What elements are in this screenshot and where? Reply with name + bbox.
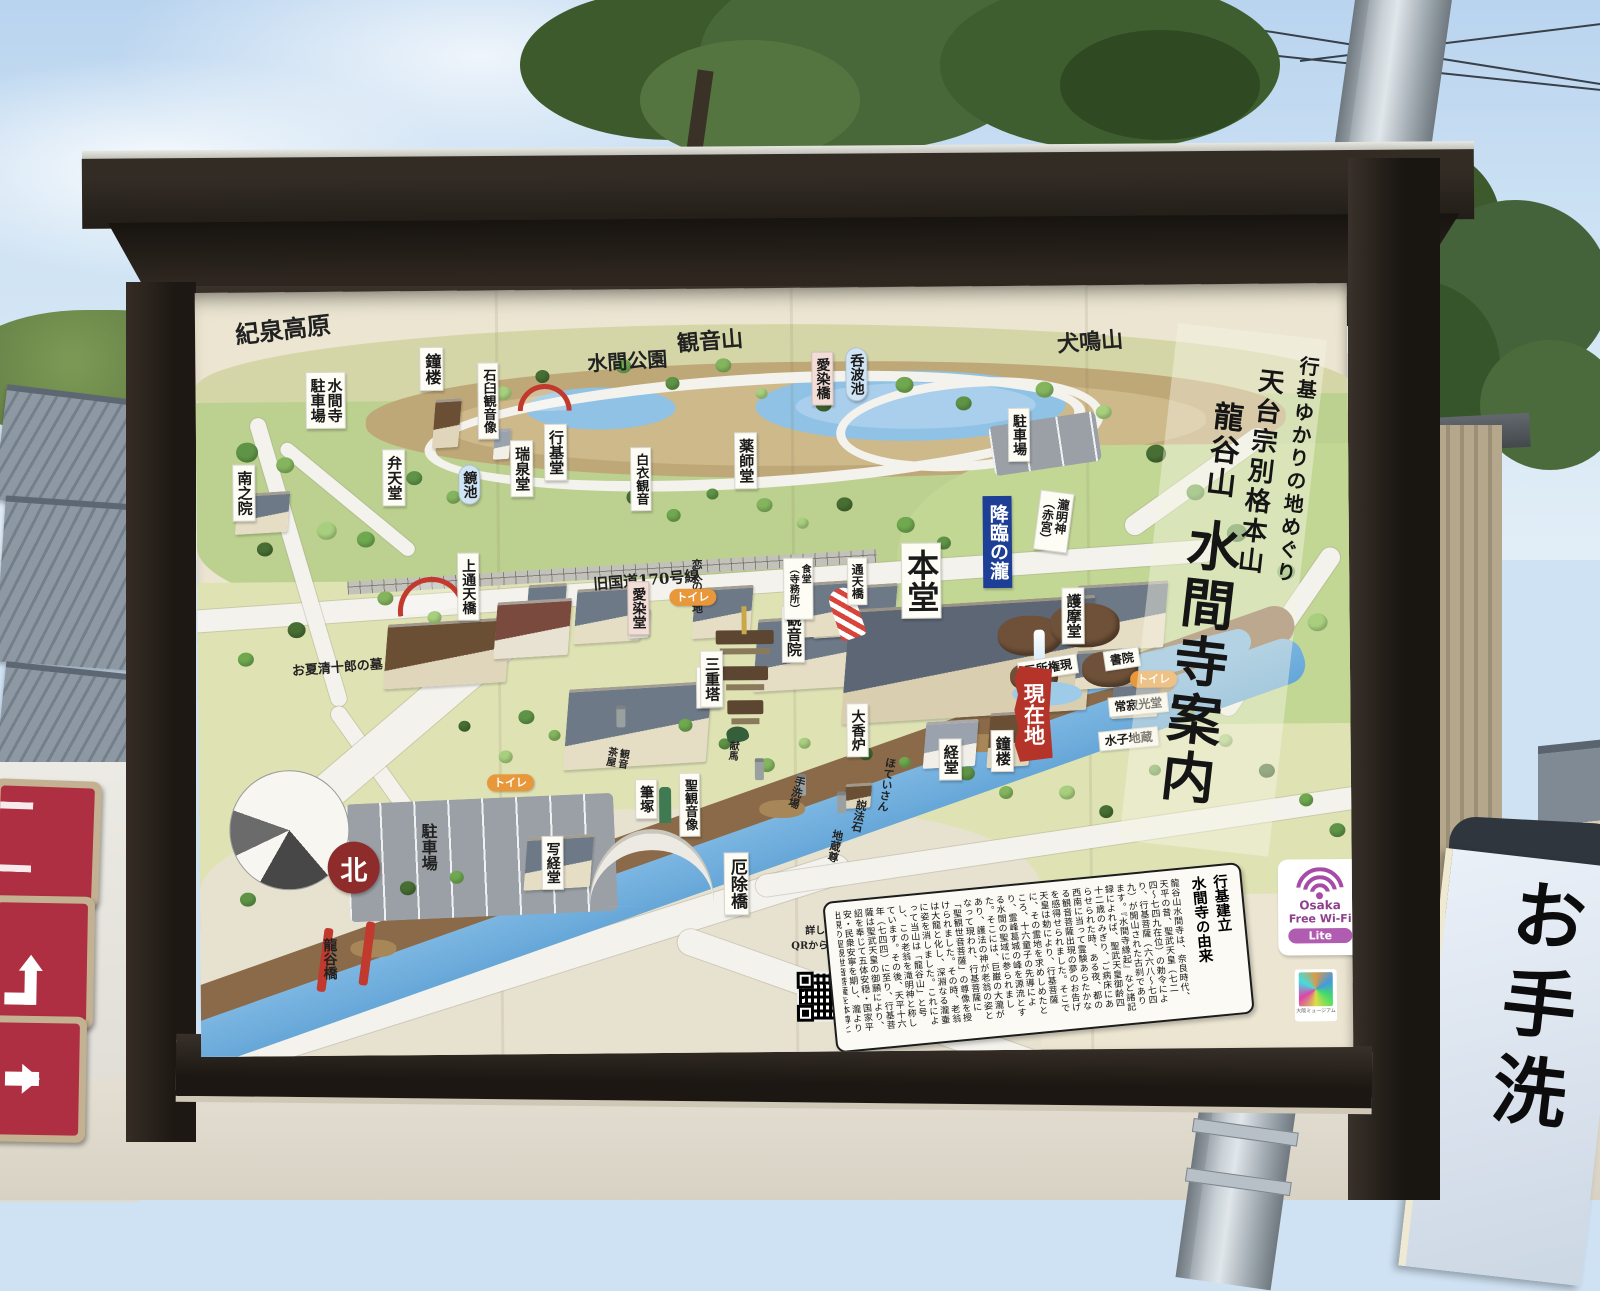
map-label: 水間寺駐車場 bbox=[305, 372, 345, 429]
map-label: 龍谷橋 bbox=[322, 938, 336, 980]
direction-sign-turn bbox=[0, 895, 95, 1029]
map-label: 大香炉 bbox=[846, 703, 868, 757]
map-label: 上通天橋 bbox=[457, 553, 480, 621]
right-arrow-icon bbox=[5, 1071, 39, 1086]
map-label: 紀泉高原 bbox=[234, 313, 332, 348]
map-label: 鏡池 bbox=[458, 465, 480, 505]
map-label: 三重塔 bbox=[700, 650, 723, 707]
museum-mosaic-icon bbox=[1299, 972, 1333, 1006]
osaka-free-wifi-logo: Osaka Free Wi-Fi Lite bbox=[1278, 859, 1354, 956]
map-label: 駐車場 bbox=[419, 823, 435, 871]
map-label: 駐車場 bbox=[1008, 408, 1030, 462]
map-label: 説法石 bbox=[850, 799, 867, 834]
map-label: 行基堂 bbox=[544, 424, 567, 481]
direction-sign-right bbox=[0, 1015, 87, 1143]
map-label: 水間公園 bbox=[587, 349, 668, 374]
signboard-right-frame bbox=[1348, 158, 1440, 1200]
tiled-roof bbox=[0, 495, 141, 670]
history-body-text: 龍谷山水間寺は、奈良時代、天平の昔、聖武天皇（七二四〜七四九在位）の勅令により、… bbox=[835, 878, 1191, 1042]
map-label: 観音茶屋 bbox=[603, 746, 628, 769]
map-label: 食堂（寺務所） bbox=[783, 558, 814, 620]
history-title: 行基建立水間寺の由来 bbox=[1186, 873, 1242, 1009]
map-label: 聖観音像 bbox=[679, 773, 701, 837]
map-label: トイレ bbox=[669, 589, 716, 606]
wifi-lite-badge: Lite bbox=[1288, 928, 1352, 944]
temple-map-panel: 紀泉高原観音山犬鳴山水間公園鐘楼石臼観音像水間寺駐車場南之院弁天堂鏡池瑞泉堂行基… bbox=[195, 283, 1354, 1057]
map-label: 愛染橋 bbox=[811, 351, 833, 405]
map-label: 愛染堂 bbox=[627, 581, 649, 635]
signboard-left-post bbox=[126, 282, 196, 1142]
map-label: 献馬 bbox=[726, 740, 738, 761]
partial-character bbox=[0, 801, 33, 873]
map-label: 厄除橋 bbox=[724, 852, 750, 915]
map-label: 瀧明神（赤宮） bbox=[1033, 490, 1075, 554]
map-label: 本堂 bbox=[901, 543, 942, 619]
compass-north-badge: 北 bbox=[327, 841, 379, 893]
osaka-museum-logo: 大阪ミュージアム bbox=[1295, 969, 1337, 1021]
map-label: 白衣観音 bbox=[630, 447, 652, 511]
map-label: 経堂 bbox=[939, 738, 962, 780]
map-label: 弁天堂 bbox=[382, 449, 405, 506]
map-label: 呑波池 bbox=[845, 347, 867, 401]
current-location-seal: 現在地 bbox=[1014, 666, 1053, 762]
map-label: 南之院 bbox=[232, 465, 255, 522]
map-label: 瑞泉堂 bbox=[510, 440, 533, 497]
map-label: 石臼観音像 bbox=[477, 362, 499, 439]
map-label: 降臨の瀧 bbox=[982, 496, 1012, 588]
restroom-sign-text: お手洗 bbox=[1465, 872, 1600, 1146]
map-label: 薬師堂 bbox=[734, 432, 757, 489]
map-label: 写経堂 bbox=[541, 836, 563, 890]
map-label: ほていさん bbox=[877, 756, 897, 812]
map-label: 地蔵尊 bbox=[826, 829, 843, 864]
map-label: 鐘楼 bbox=[991, 730, 1014, 772]
direction-sign-partial bbox=[0, 778, 102, 908]
map-label: お夏清十郎の墓 bbox=[292, 658, 384, 678]
photo-of-temple-map-signboard: { "scene": { "restroom_sign_text": "お手洗"… bbox=[0, 0, 1600, 1200]
map-label: 鐘楼 bbox=[419, 347, 443, 391]
map-label: 観音山 bbox=[676, 328, 744, 355]
map-label: 通天橋 bbox=[847, 557, 867, 605]
map-label: 手洗場 bbox=[787, 775, 806, 810]
map-label: トイレ bbox=[487, 774, 534, 791]
map-label: 筆塚 bbox=[635, 779, 657, 819]
